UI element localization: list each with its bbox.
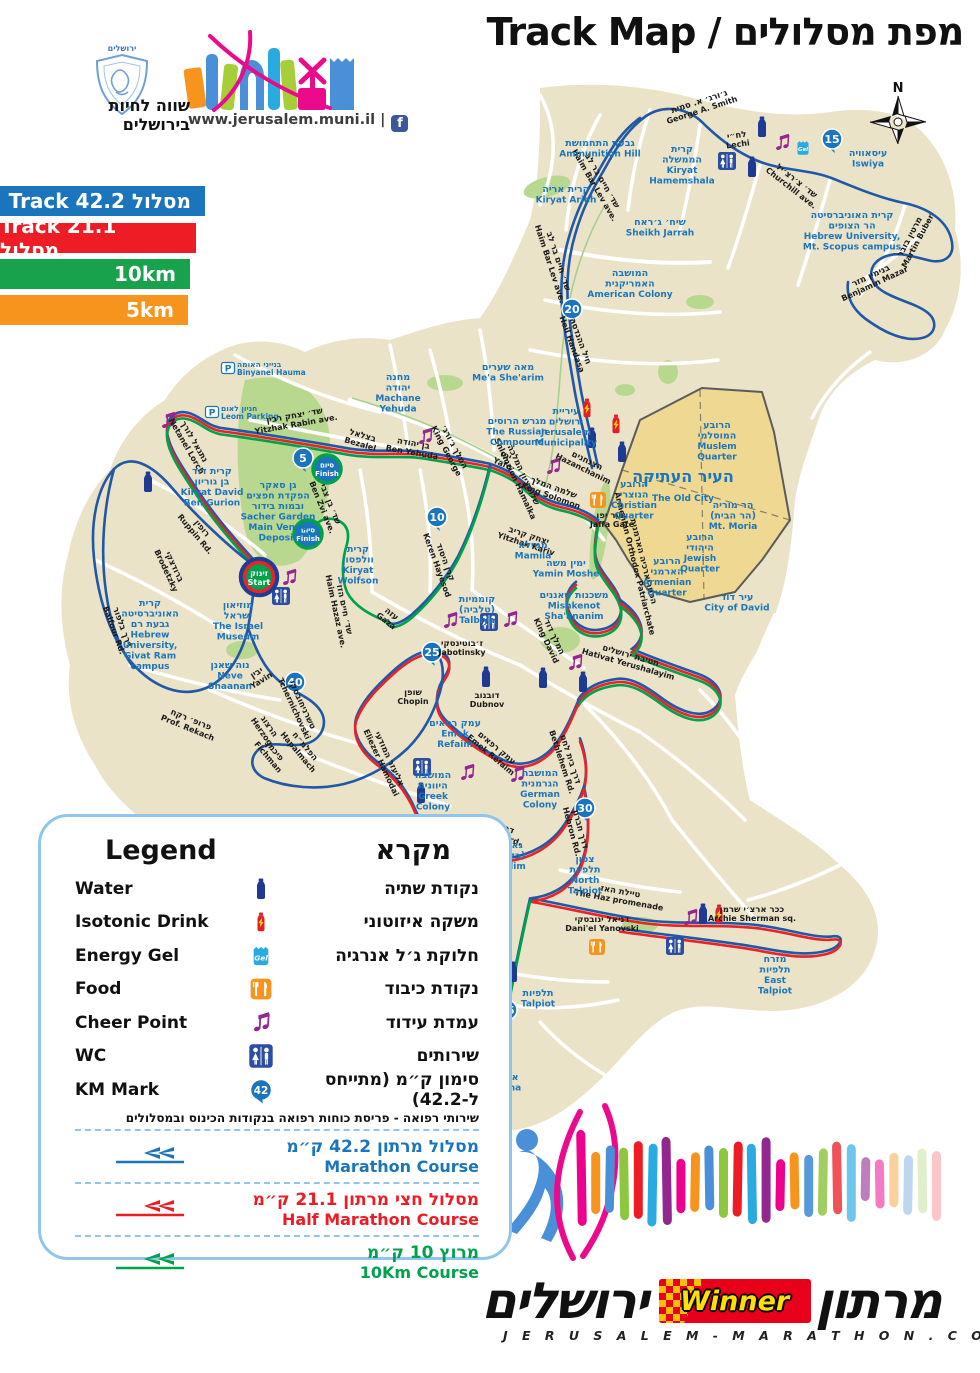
- brand-color-bar: [719, 1148, 728, 1218]
- cheer-point-icon: [233, 1010, 289, 1036]
- place-label: עיסאוויהIswiya: [849, 148, 887, 170]
- svg-text:Binyanei Hauma: Binyanei Hauma: [237, 368, 306, 377]
- svg-text:זינוק: זינוק: [250, 569, 268, 578]
- food-icon: [590, 492, 606, 508]
- brand-color-bar: [790, 1152, 800, 1209]
- brand-color-bar: [762, 1137, 771, 1223]
- place-label: קוממיות(טלביה)Talbiya: [459, 594, 496, 626]
- energy-gel-icon: [233, 944, 289, 968]
- gel-icon: [798, 141, 809, 155]
- legend-row-food: Food נקודת כיבוד: [75, 973, 479, 1007]
- svg-text:42: 42: [254, 1085, 269, 1097]
- brand-color-bar: [861, 1157, 871, 1201]
- place-label: שיח׳ ג׳ראחSheikh Jarrah: [626, 217, 694, 239]
- legend-row-cheer: Cheer Point עמדת עידוד: [75, 1006, 479, 1040]
- water-icon: [233, 877, 289, 901]
- food-icon: [233, 976, 289, 1002]
- svg-text:Start: Start: [248, 578, 271, 587]
- brand-color-bar: [591, 1152, 600, 1214]
- isotonic-icon: [233, 910, 289, 934]
- brand-color-bar: [847, 1144, 856, 1222]
- ribbon-track-21: Track 21.1 מסלול: [0, 223, 196, 253]
- wc-icon: [718, 152, 736, 170]
- marathon-line-icon: [75, 1143, 225, 1171]
- ten-km-line-icon: [75, 1249, 225, 1277]
- brand-color-bar: [661, 1137, 672, 1225]
- place-label: מאה שעריםMe'a She'arim: [472, 362, 544, 384]
- place-label: הר מוריה(הר הבית)Mt. Moria: [709, 500, 758, 532]
- brand-color-bar: [775, 1159, 785, 1211]
- track-map-page: Gel: [0, 0, 980, 1373]
- svg-text:25: 25: [424, 646, 439, 659]
- brand-color-bar: [605, 1145, 615, 1213]
- municipality-url[interactable]: www.jerusalem.muni.il |f: [188, 112, 408, 132]
- half-marathon-line-icon: [75, 1196, 225, 1224]
- brand-color-bar: [619, 1148, 629, 1221]
- brand-color-bar: [889, 1153, 898, 1207]
- brand-color-bar: [690, 1152, 700, 1212]
- legend-row-gel: Energy Gel חלוקת ג׳ל אנרגיה: [75, 939, 479, 973]
- svg-text:Finish: Finish: [315, 470, 339, 478]
- brand-color-bar: [576, 1130, 587, 1226]
- page-title: Track Map / מפת מסלולים: [480, 10, 970, 54]
- legend-title-he: מקרא: [376, 835, 451, 866]
- brand-color-bar: [804, 1155, 813, 1217]
- marathon-url[interactable]: J E R U S A L E M - M A R A T H O N . C …: [503, 1328, 833, 1343]
- wc-icon: [233, 1043, 289, 1069]
- brand-color-bar: [747, 1144, 757, 1225]
- brand-color-bar: [818, 1148, 828, 1216]
- svg-text:10: 10: [429, 511, 445, 524]
- legend-row-water: Water נקודת שתיה: [75, 872, 479, 906]
- start-badge: זינוקStart: [241, 559, 277, 595]
- street-label: ז׳בוטינסקיJabotinsky: [437, 639, 486, 657]
- brand-color-bar: [932, 1151, 941, 1221]
- street-label: ככר ארצ׳י שרמןArchie Sherman sq.: [708, 905, 796, 923]
- legend-half-marathon-course: מסלול חצי מרתון 21.1 ק״מ Half Marathon C…: [75, 1182, 479, 1235]
- ribbon-track-42: Track 42.2 מסלול: [0, 186, 205, 216]
- svg-text:N: N: [893, 81, 904, 96]
- facebook-icon[interactable]: f: [391, 115, 408, 132]
- brand-color-bar: [634, 1141, 643, 1219]
- place-label: המושבההגרמניתGermanColony: [520, 768, 560, 811]
- brand-color-bar: [704, 1145, 714, 1210]
- municipality-logo: ירושלים שווה לחיותבירושלים www.j: [60, 30, 480, 150]
- marathon-brand: ירושלים Winner מרתון J E R U S A L E M -…: [485, 1100, 975, 1365]
- brand-jerusalem-text: ירושלים: [479, 1272, 657, 1330]
- legend-row-km: KM Mark 42 סימון ק״מ (מתייחס ל-42.2): [75, 1073, 479, 1107]
- legend-row-wc: WC שירותים: [75, 1040, 479, 1074]
- place-label: קרית האוניברסיטההר הצופיםHebrew Universi…: [803, 210, 901, 253]
- winner-logo: Winner: [659, 1279, 811, 1323]
- legend-marathon-course: מסלול מרתון 42.2 ק״מ Marathon Course: [75, 1131, 479, 1182]
- place-label: תלפיותTalpiot: [521, 988, 556, 1010]
- medical-note: שירותי רפואה - פריסת כוחות רפואה בנקודות…: [75, 1111, 479, 1125]
- brand-color-bar: [647, 1144, 657, 1227]
- svg-text:סיום: סיום: [320, 462, 334, 470]
- legend-panel: Legend מקרא Water נקודת שתיה Isotonic Dr…: [38, 814, 512, 1260]
- brand-color-bar: [832, 1142, 842, 1215]
- brand-color-bar: [903, 1155, 913, 1215]
- brand-color-bar: [733, 1141, 743, 1216]
- svg-text:Finish: Finish: [296, 535, 320, 543]
- ribbon-5km: 5km: [0, 295, 188, 325]
- place-label: המושבההיווניתGreekColony: [415, 770, 451, 813]
- brand-color-bar: [917, 1148, 927, 1213]
- wc-icon: [666, 937, 684, 955]
- brand-color-bar: [875, 1159, 885, 1208]
- runner-art-graphic: [485, 1100, 975, 1270]
- place-label: קרית אריהKiryat Arieh: [536, 184, 597, 206]
- finish-badge: סיוםFinish: [313, 455, 341, 483]
- svg-text:15: 15: [824, 133, 839, 146]
- brand-marathon-text: מרתון: [813, 1272, 950, 1330]
- legend-10km-course: מרוץ 10 ק״מ 10Km Course: [75, 1235, 479, 1288]
- place-label: גבעת התחמושתAmmunition Hill: [559, 138, 641, 160]
- svg-text:5: 5: [299, 452, 307, 465]
- brand-color-bar: [676, 1159, 685, 1213]
- city-skyline-graphic: [180, 30, 360, 122]
- legend-row-isotonic: Isotonic Drink משקה איזוטוני: [75, 906, 479, 940]
- legend-title-en: Legend: [105, 835, 217, 866]
- logo-slogan: שווה לחיותבירושלים: [70, 96, 190, 134]
- place-label: משכנות שאנניםMishkenotSha'ananim: [540, 590, 609, 622]
- street-label: דניאל ינובסקיDani'el Yanovski: [565, 915, 639, 933]
- km-mark-icon: 42: [233, 1076, 289, 1104]
- food-icon: [589, 939, 605, 955]
- ribbon-10km: 10km: [0, 259, 190, 289]
